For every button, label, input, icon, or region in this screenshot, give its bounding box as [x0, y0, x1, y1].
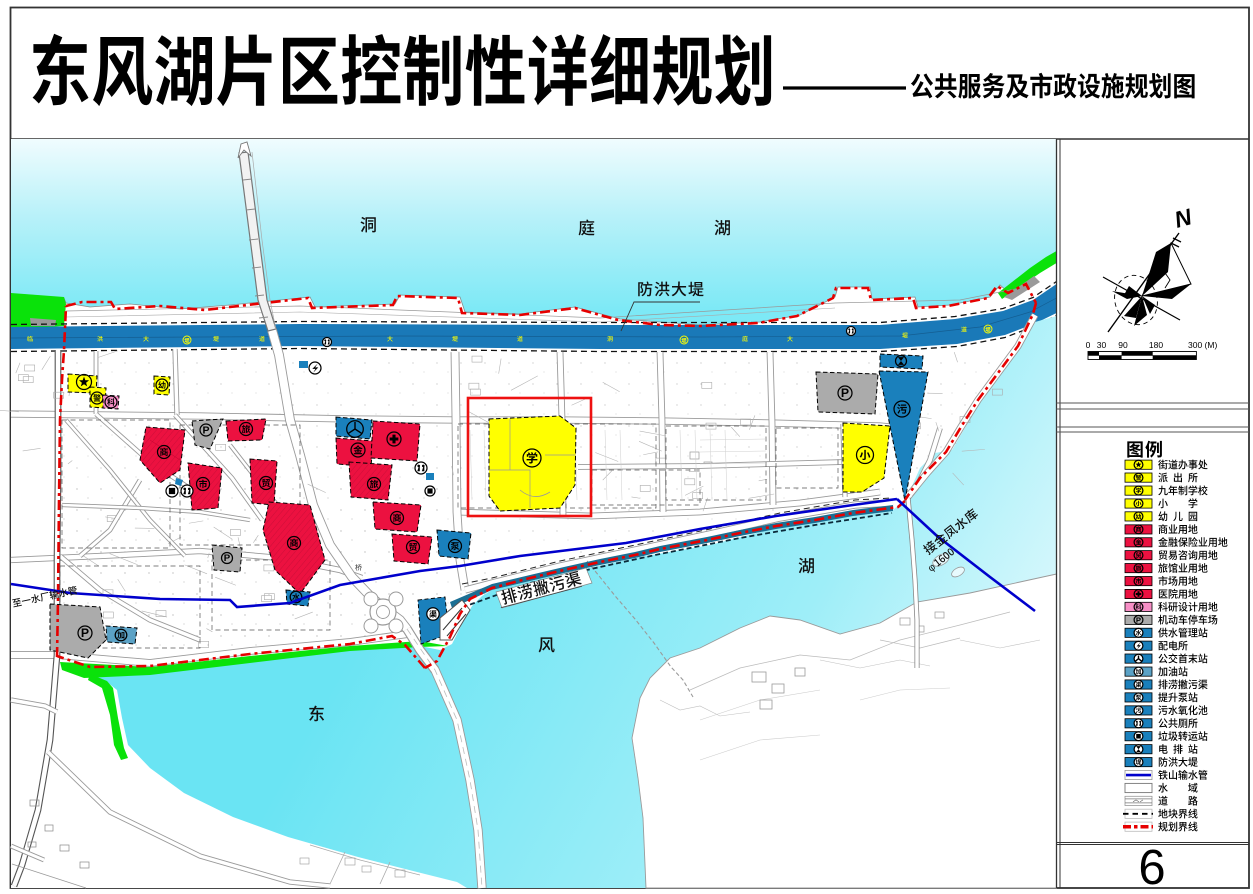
- svg-text:P: P: [202, 424, 209, 436]
- svg-text:30: 30: [1097, 340, 1107, 350]
- svg-text:0: 0: [1086, 340, 1091, 350]
- svg-text:P: P: [1136, 615, 1141, 624]
- svg-text:300 (M): 300 (M): [1188, 340, 1217, 350]
- svg-text:P: P: [841, 386, 849, 400]
- svg-text:P: P: [81, 626, 89, 640]
- svg-text:90: 90: [1118, 340, 1128, 350]
- svg-text:6: 6: [1138, 841, 1165, 894]
- svg-text:180: 180: [1149, 340, 1163, 350]
- svg-text:P: P: [224, 553, 231, 564]
